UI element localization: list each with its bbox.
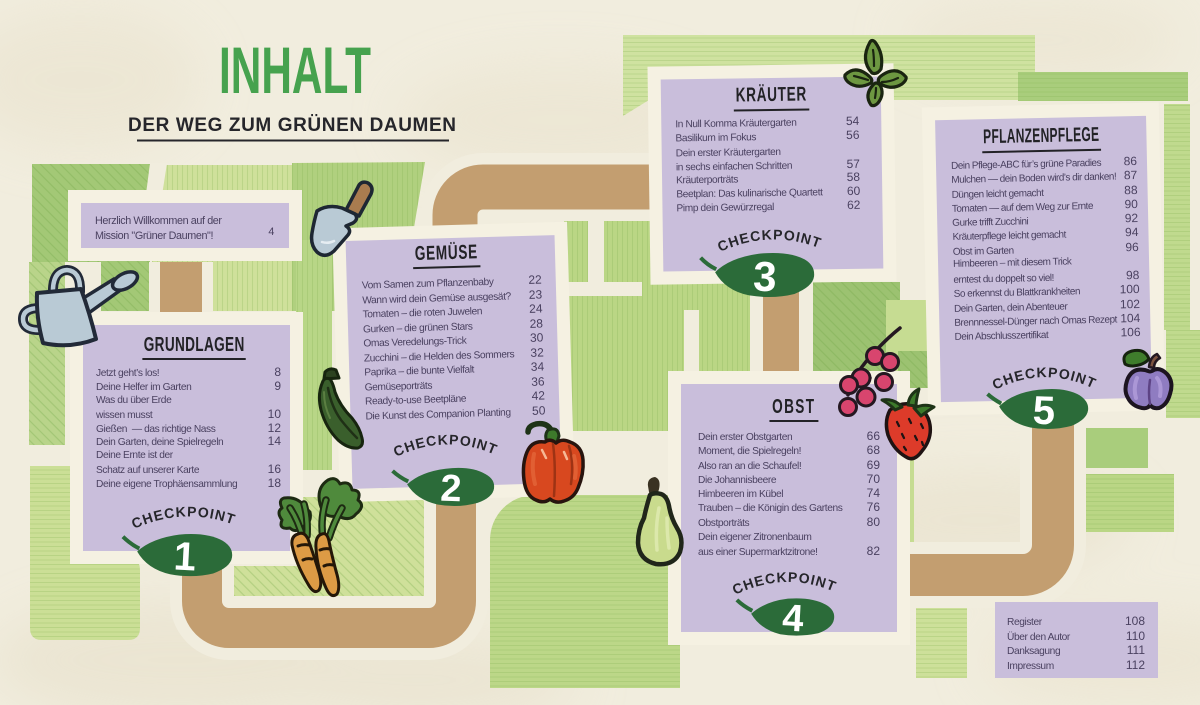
svg-text:DER WEG ZUM GRÜNEN DAUMEN: DER WEG ZUM GRÜNEN DAUMEN [128,115,456,136]
svg-text:INHALT: INHALT [219,33,371,107]
